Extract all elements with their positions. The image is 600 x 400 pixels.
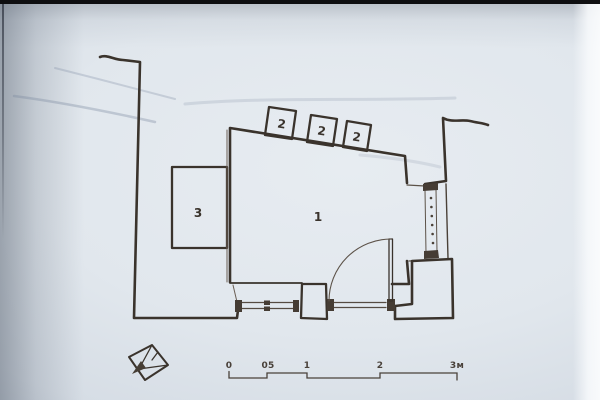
annex-a-label: 2 xyxy=(276,116,286,131)
left-boundary-wall xyxy=(100,56,238,318)
photographed-plan-page: 1 3 2 2 2 0 05 1 2 3м xyxy=(0,0,600,400)
scale-tick-1: 1 xyxy=(304,361,311,371)
right-boundary-wall xyxy=(425,118,488,184)
room-3-label: 3 xyxy=(194,206,202,220)
floor-plan-drawing: 1 3 2 2 2 0 05 1 2 3м xyxy=(0,0,600,400)
room-1-label: 1 xyxy=(314,210,322,224)
door-arc xyxy=(329,239,391,301)
passage-threshold-strip xyxy=(423,183,439,259)
door-leaf xyxy=(389,239,393,301)
scale-tick-3m: 3м xyxy=(450,361,464,371)
door-threshold xyxy=(334,303,386,308)
photo-top-edge xyxy=(0,0,600,4)
scale-bar: 0 05 1 2 3м xyxy=(226,361,464,380)
window-symbol xyxy=(233,285,299,312)
annex-b-label: 2 xyxy=(316,123,326,138)
window-mullion xyxy=(264,301,270,306)
door-symbol xyxy=(327,239,395,311)
passage-right-edge xyxy=(446,184,448,258)
bottom-right-pier-outline xyxy=(395,259,453,319)
main-hall-outline xyxy=(230,128,407,282)
page-left-edge xyxy=(2,4,4,239)
scale-tick-0: 0 xyxy=(226,361,233,371)
scale-tick-05: 05 xyxy=(261,361,274,371)
passage-top-edge xyxy=(407,185,425,186)
north-arrow-icon xyxy=(129,345,168,380)
main-hall-lower-right-wall xyxy=(392,261,409,284)
annex-c-label: 2 xyxy=(351,129,361,144)
scale-tick-2: 2 xyxy=(377,361,384,371)
threshold-dots xyxy=(430,197,435,245)
center-pier-outline xyxy=(301,284,327,319)
